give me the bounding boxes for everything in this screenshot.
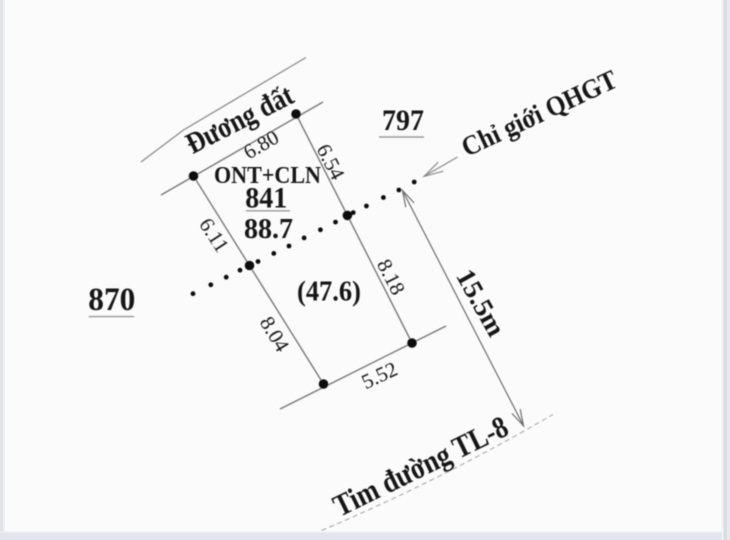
svg-text:870: 870 <box>88 282 135 318</box>
svg-text:797: 797 <box>382 104 424 137</box>
svg-text:(47.6): (47.6) <box>297 276 361 308</box>
svg-text:841: 841 <box>245 182 287 215</box>
svg-text:88.7: 88.7 <box>244 214 293 245</box>
